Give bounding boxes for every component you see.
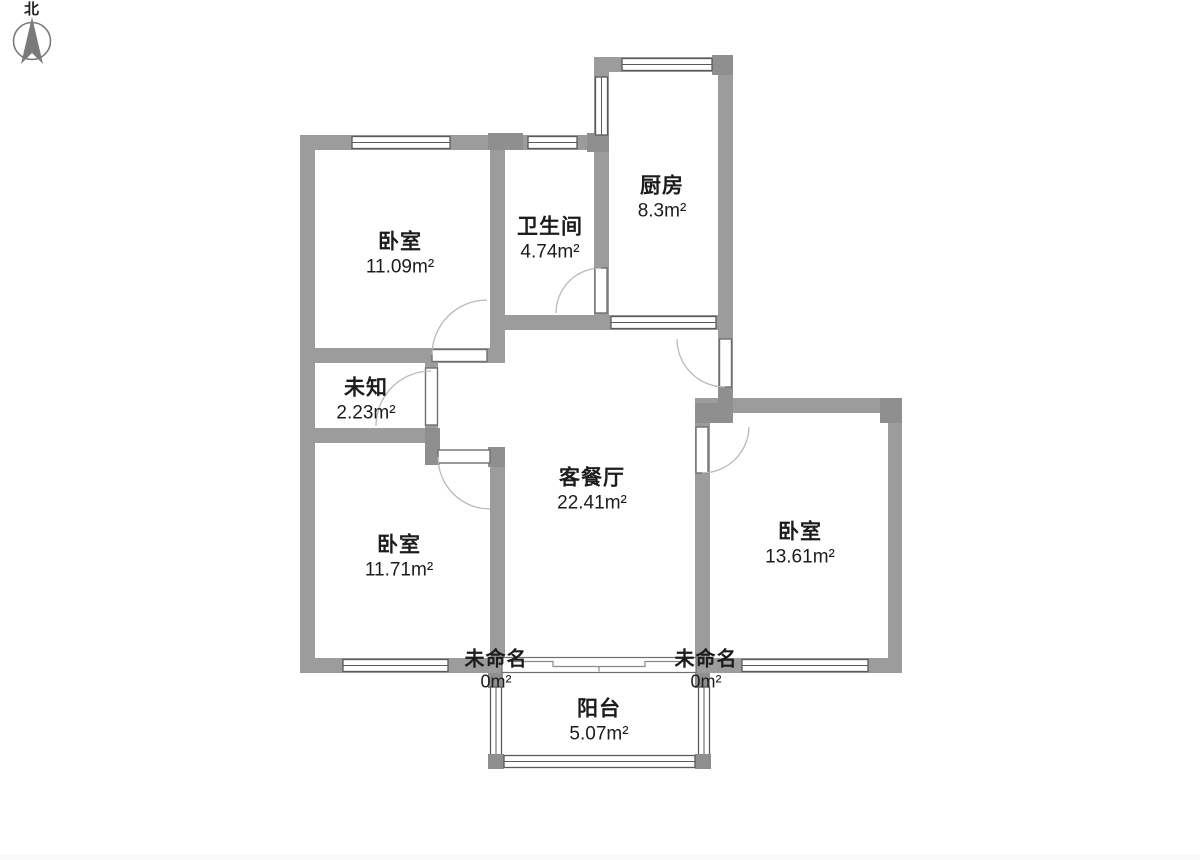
room-name: 未知 <box>336 376 395 402</box>
room-name: 厨房 <box>638 174 687 200</box>
room-name: 未命名 <box>675 648 738 672</box>
room-area: 22.41m² <box>557 492 627 515</box>
room-area: 0m² <box>675 672 738 693</box>
room-name: 未命名 <box>465 648 528 672</box>
room-name: 卫生间 <box>517 215 583 241</box>
room-label-living-dining: 客餐厅 22.41m² <box>557 466 627 515</box>
room-name: 卧室 <box>765 520 835 546</box>
room-area: 11.71m² <box>365 559 433 582</box>
room-name: 卧室 <box>365 533 433 559</box>
room-name: 客餐厅 <box>557 466 627 492</box>
room-label-bedroom-top: 卧室 11.09m² <box>366 230 434 279</box>
room-label-kitchen: 厨房 8.3m² <box>638 174 687 223</box>
room-label-unnamed-left: 未命名 0m² <box>465 648 528 693</box>
room-label-bedroom-left: 卧室 11.71m² <box>365 533 433 582</box>
room-area: 2.23m² <box>336 402 395 425</box>
room-label-balcony: 阳台 5.07m² <box>569 697 628 746</box>
room-area: 11.09m² <box>366 256 434 279</box>
room-area: 4.74m² <box>517 241 583 264</box>
room-label-bathroom: 卫生间 4.74m² <box>517 215 583 264</box>
room-label-unknown: 未知 2.23m² <box>336 376 395 425</box>
room-label-bedroom-right: 卧室 13.61m² <box>765 520 835 569</box>
room-area: 0m² <box>465 672 528 693</box>
floor-plan-page: 北 <box>0 0 1200 860</box>
room-area: 13.61m² <box>765 546 835 569</box>
room-name: 阳台 <box>569 697 628 723</box>
room-area: 5.07m² <box>569 723 628 746</box>
room-area: 8.3m² <box>638 200 687 223</box>
sliding-door <box>502 658 696 673</box>
room-name: 卧室 <box>366 230 434 256</box>
page-bottom-strip <box>0 855 1200 860</box>
room-label-unnamed-right: 未命名 0m² <box>675 648 738 693</box>
